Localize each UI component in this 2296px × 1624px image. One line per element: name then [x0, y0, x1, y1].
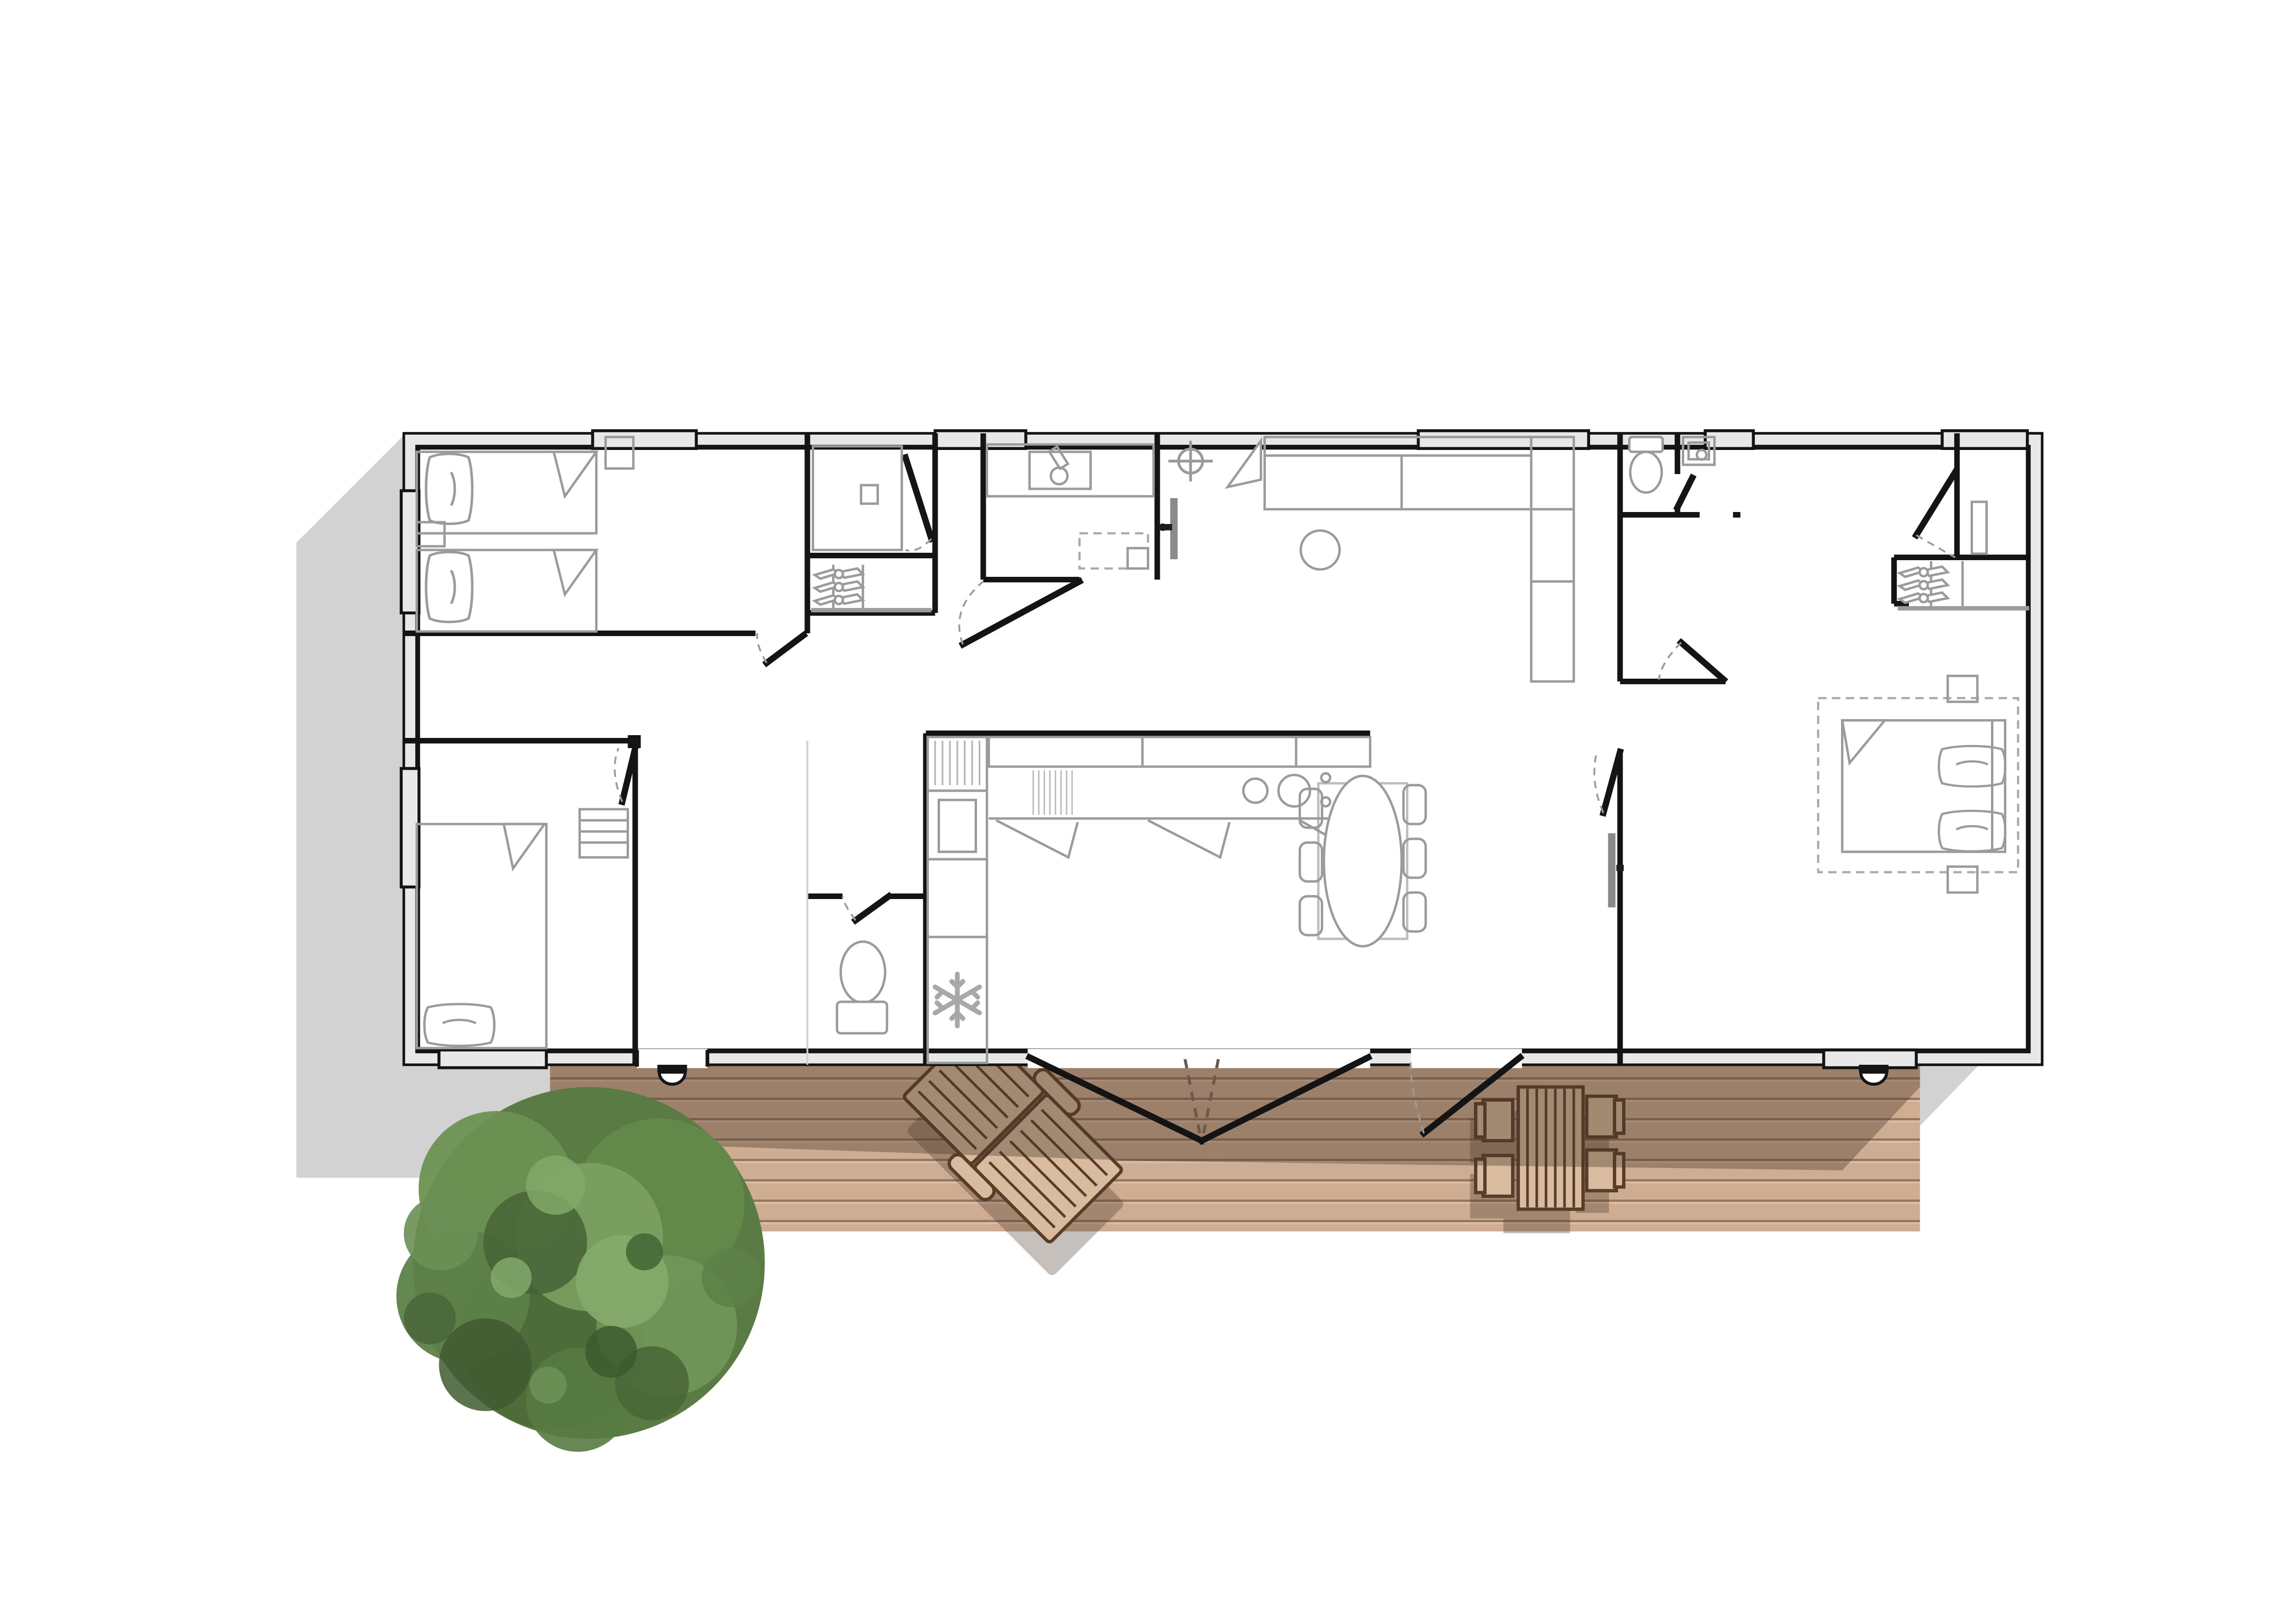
threshold-step-left: [658, 1065, 687, 1084]
threshold-step-right: [1859, 1065, 1889, 1084]
toilet-tank: [837, 1002, 887, 1033]
suite-toilet-tank: [1630, 437, 1663, 452]
building: [401, 431, 2042, 1141]
interior-floor: [418, 447, 2028, 1051]
window-washbasin-top: [1705, 431, 1754, 448]
dining-furniture: [1300, 776, 1426, 946]
window-bedroom-twin-top: [593, 431, 697, 448]
oval-table: [1324, 776, 1402, 946]
window-bedroom-second-bottom: [439, 1050, 547, 1068]
tree: [397, 1087, 765, 1452]
deck-shadow-right-triangle: [1920, 1065, 1979, 1126]
window-living-top: [1419, 431, 1589, 448]
floor-plan-canvas: [0, 0, 2296, 1624]
french-doors-opening: [1028, 1049, 1370, 1068]
floor-plan-page: [0, 0, 2296, 1624]
